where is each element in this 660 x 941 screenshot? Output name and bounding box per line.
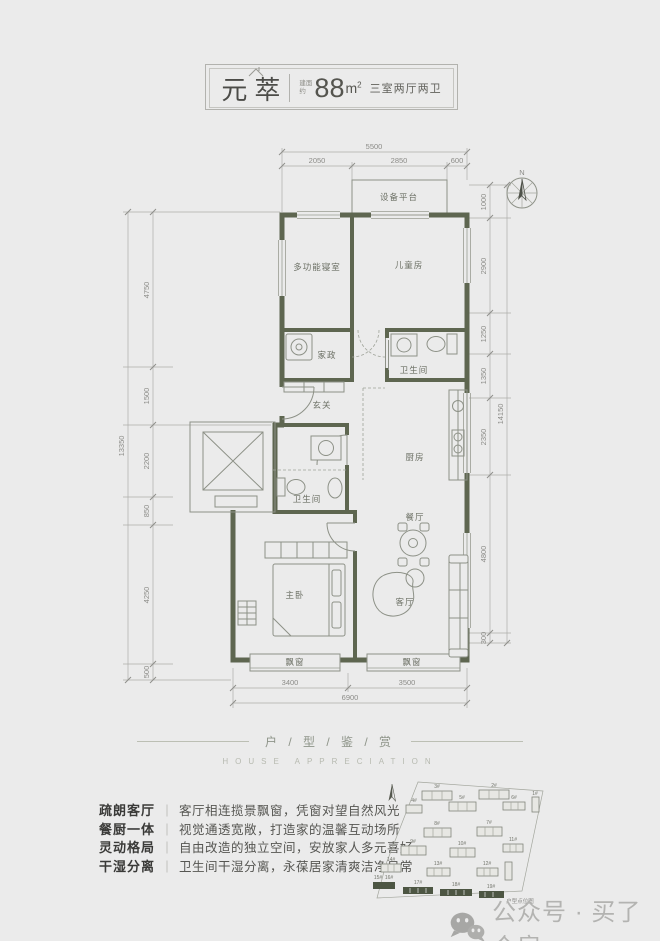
building-label: 11# (509, 837, 517, 843)
room-label-multi: 多功能寝室 (293, 262, 341, 272)
appreciation-title: 户 / 型 / 鉴 / 赏 (265, 733, 395, 750)
site-building-9: 9# (401, 839, 426, 855)
dim-left-total: 13350 (117, 436, 126, 457)
room-label-kids: 儿童房 (395, 260, 424, 270)
dim-left-seg2: 1500 (142, 388, 151, 405)
area-value: 88 (314, 73, 344, 104)
feature-separator: ｜ (161, 821, 173, 840)
watermark-text: 公众号 · 买了个房 (492, 892, 660, 941)
unit-name-wrap: 元萃 (221, 70, 287, 107)
feature-row: 干湿分离 ｜ 卫生间干湿分离，永葆居家清爽洁净日常 (99, 858, 413, 877)
dim-right-seg4: 1350 (479, 368, 488, 385)
building-label: 10# (458, 841, 467, 847)
feature-label: 干湿分离 (99, 858, 155, 877)
dim-top-seg1: 2050 (309, 156, 326, 165)
dim-top-seg3: 600 (451, 156, 464, 165)
room-label-entry: 玄关 (312, 400, 331, 410)
room-label-kitchen: 厨房 (405, 452, 424, 462)
feature-desc: 视觉通透宽敞，打造家的温馨互动场所 (179, 821, 400, 840)
building-label: 13# (434, 861, 443, 867)
building-label: 3# (434, 784, 440, 790)
room-label-master: 主卧 (285, 590, 304, 600)
bay-window-right: 飘窗 (367, 654, 460, 671)
unit-area-group: 建面 约 88 m2 三室两厅两卫 (299, 73, 441, 104)
building-label: 1# (532, 791, 538, 797)
site-building-3: 3# (422, 784, 452, 800)
dim-left-seg3: 2200 (142, 453, 151, 470)
dim-right-seg3: 1250 (479, 326, 488, 343)
building-label: 8# (434, 821, 440, 827)
area-unit-sup: 2 (357, 80, 361, 89)
feature-list: 疏朗客厅 ｜ 客厅相连揽景飘窗，凭窗对望自然风光 餐厨一体 ｜ 视觉通透宽敞，打… (99, 802, 413, 876)
feature-desc: 客厅相连揽景飘窗，凭窗对望自然风光 (179, 802, 400, 821)
dim-left-seg4: 850 (142, 505, 151, 518)
dim-bottom-seg1: 3400 (282, 678, 299, 687)
feature-label: 灵动格局 (99, 839, 155, 858)
building-label: 15# (374, 875, 383, 881)
feature-row: 灵动格局 ｜ 自由改造的独立空间，安放家人多元喜好 (99, 839, 413, 858)
room-label-bay-right: 飘窗 (402, 657, 421, 667)
room-label-bath-upper: 卫生间 (400, 365, 429, 375)
dim-left-seg6: 500 (142, 666, 151, 679)
unit-title-inner: 元萃 建面 约 88 m2 三室两厅两卫 (209, 68, 454, 108)
building-label: 6# (511, 795, 517, 801)
site-building-12: 12# (477, 861, 498, 876)
area-unit-base: m (345, 80, 357, 96)
appreciation-title-row: 户 / 型 / 鉴 / 赏 (0, 733, 660, 750)
room-label-equipment: 设备平台 (380, 192, 418, 202)
site-building-7: 7# (477, 820, 502, 836)
dim-bottom-seg2: 3500 (399, 678, 416, 687)
area-prefix-line1: 建面 (299, 80, 312, 88)
area-prefix: 建面 约 (299, 80, 312, 96)
compass-north-label: N (519, 168, 524, 177)
divider-line-left (137, 741, 249, 742)
appreciation-subtitle: HOUSE APPRECIATION (0, 757, 660, 766)
site-building-1: 1# (532, 791, 539, 812)
dim-right-seg7: 300 (479, 632, 488, 645)
feature-label: 餐厨一体 (99, 821, 155, 840)
room-label-dining: 餐厅 (405, 512, 424, 522)
area-prefix-line2: 约 (299, 88, 312, 96)
building-label: 16# (385, 875, 394, 881)
site-building-11: 11# (503, 837, 523, 852)
wechat-icon (449, 908, 486, 941)
site-building-17: 17# (403, 880, 433, 894)
elevator-core (190, 422, 275, 512)
site-building-10: 10# (450, 841, 475, 857)
unit-title-card: 元萃 建面 约 88 m2 三室两厅两卫 (205, 64, 458, 110)
building-label: 7# (486, 820, 492, 826)
building-label: 12# (483, 861, 492, 867)
room-label-laundry: 家政 (317, 350, 336, 360)
feature-separator: ｜ (161, 802, 173, 821)
dim-left-seg5: 4250 (142, 587, 151, 604)
site-building-5: 5# (449, 795, 476, 811)
building-label: 19# (487, 884, 496, 890)
dim-bottom-total: 6900 (342, 693, 359, 702)
room-label-bath-lower: 卫生间 (293, 494, 322, 504)
building-label: 17# (414, 880, 423, 886)
building-label: 2# (491, 783, 497, 789)
dim-right-seg6: 4800 (479, 546, 488, 563)
watermark: 公众号 · 买了个房 (449, 892, 660, 941)
feature-label: 疏朗客厅 (99, 802, 155, 821)
bay-window-left: 飘窗 (250, 654, 340, 671)
compass-icon: N (507, 168, 537, 208)
site-building-16: 16# (382, 875, 395, 889)
unit-layout: 三室两厅两卫 (370, 80, 442, 96)
site-building-unlabeled (505, 862, 512, 880)
feature-separator: ｜ (161, 858, 173, 877)
room-label-living: 客厅 (395, 597, 414, 607)
feature-row: 餐厨一体 ｜ 视觉通透宽敞，打造家的温馨互动场所 (99, 821, 413, 840)
building-label: 18# (452, 882, 461, 888)
area-unit: m2 (345, 80, 361, 96)
building-label: 9# (410, 839, 416, 845)
building-label: 4# (411, 798, 417, 804)
room-label-bay-left: 飘窗 (285, 657, 304, 667)
dim-right-seg1: 1000 (479, 194, 488, 211)
building-label: 5# (459, 795, 465, 801)
appreciation-section: 户 / 型 / 鉴 / 赏 HOUSE APPRECIATION (0, 733, 660, 766)
feature-separator: ｜ (161, 839, 173, 858)
site-building-8: 8# (424, 821, 451, 837)
building-label: 14# (387, 857, 396, 863)
feature-row: 疏朗客厅 ｜ 客厅相连揽景飘窗，凭窗对望自然风光 (99, 802, 413, 821)
site-building-15: 15# (373, 875, 382, 889)
dim-top-seg2: 2850 (391, 156, 408, 165)
site-building-4: 4# (406, 798, 422, 813)
dim-left-seg1: 4750 (142, 282, 151, 299)
site-building-14: 14# (381, 857, 401, 872)
floor-plan: 5500 2050 2850 600 4750 1500 2200 850 42… (115, 138, 545, 723)
title-divider (289, 74, 290, 102)
north-arrow-icon (389, 784, 396, 801)
dim-top-total: 5500 (366, 142, 383, 151)
divider-line-right (411, 741, 523, 742)
dim-right-seg5: 2350 (479, 429, 488, 446)
roof-icon (248, 66, 264, 77)
site-building-13: 13# (427, 861, 450, 876)
floorplan-page: 元萃 建面 约 88 m2 三室两厅两卫 5500 2050 2850 600 (0, 0, 660, 941)
site-building-2: 2# (479, 783, 509, 799)
site-plan: 1# 2# 3# 4# 5# 6# 7# 8# 9# 10# 11# (372, 778, 547, 908)
dim-right-seg2: 2900 (479, 258, 488, 275)
dim-right-total: 14150 (496, 404, 505, 425)
equipment-platform: 设备平台 (352, 180, 447, 215)
